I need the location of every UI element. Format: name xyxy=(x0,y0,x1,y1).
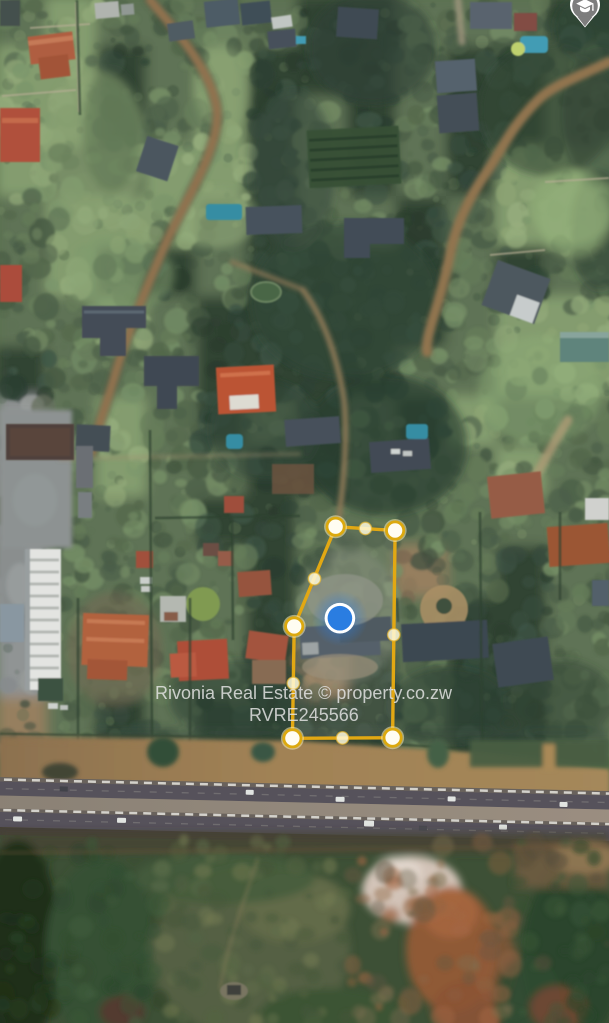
svg-text:Rivonia Real Estate © property: Rivonia Real Estate © property.co.zw xyxy=(155,683,453,703)
svg-text:RVRE245566: RVRE245566 xyxy=(249,705,359,725)
